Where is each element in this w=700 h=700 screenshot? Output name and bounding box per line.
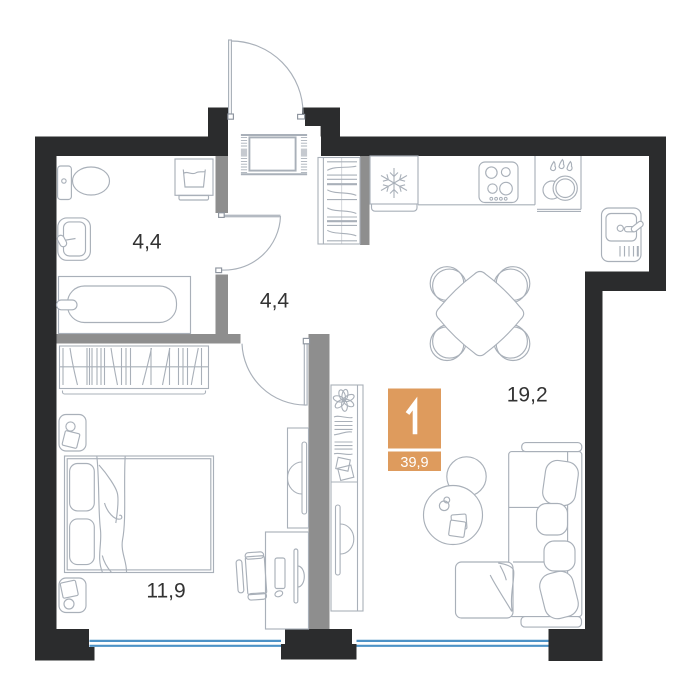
svg-text:4,4: 4,4: [260, 290, 290, 313]
svg-text:11,9: 11,9: [146, 580, 185, 603]
svg-text:39,9: 39,9: [400, 455, 428, 471]
svg-text:4,4: 4,4: [132, 231, 162, 254]
svg-text:19,2: 19,2: [507, 384, 548, 407]
